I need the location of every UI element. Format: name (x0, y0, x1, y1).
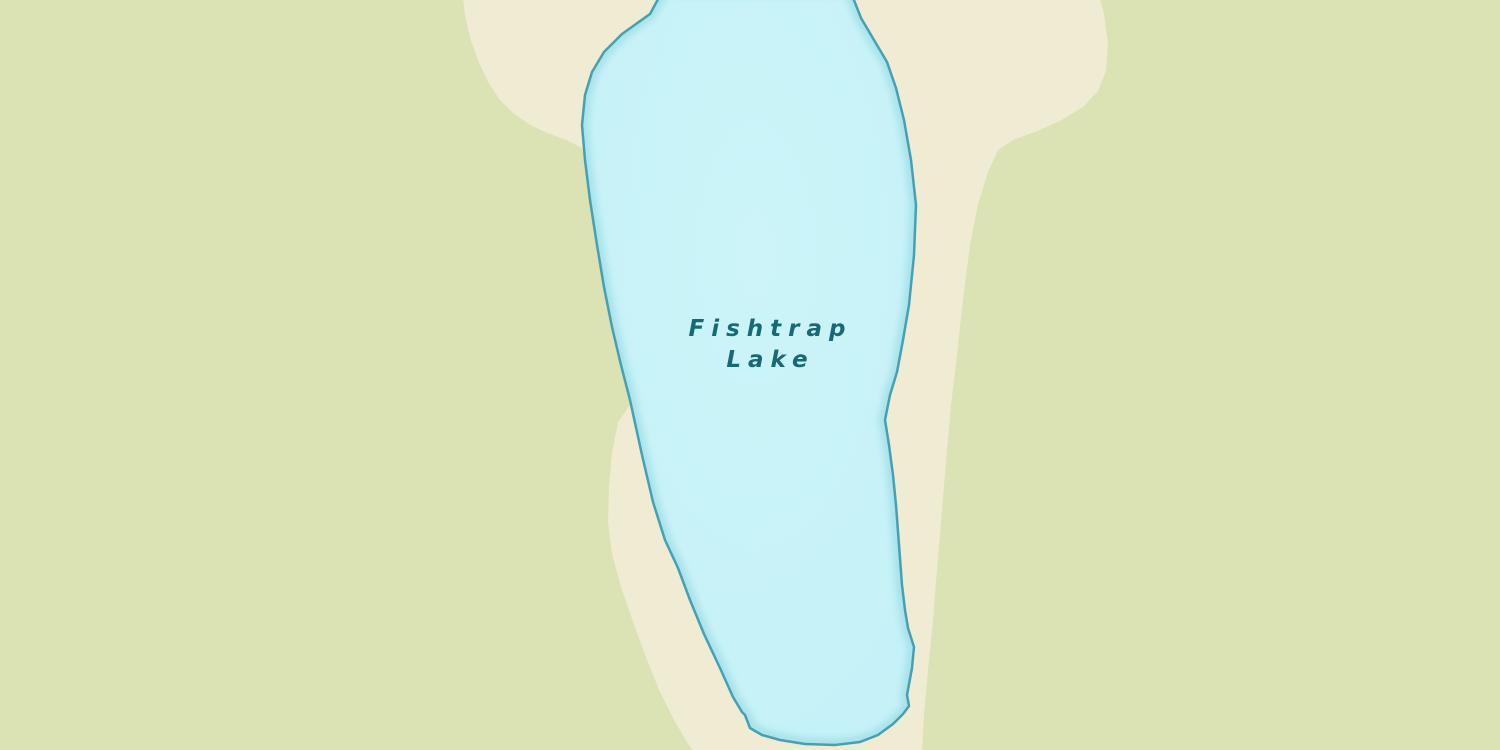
map-canvas (0, 0, 1500, 750)
map-viewport[interactable]: Fishtrap Lake (0, 0, 1500, 750)
